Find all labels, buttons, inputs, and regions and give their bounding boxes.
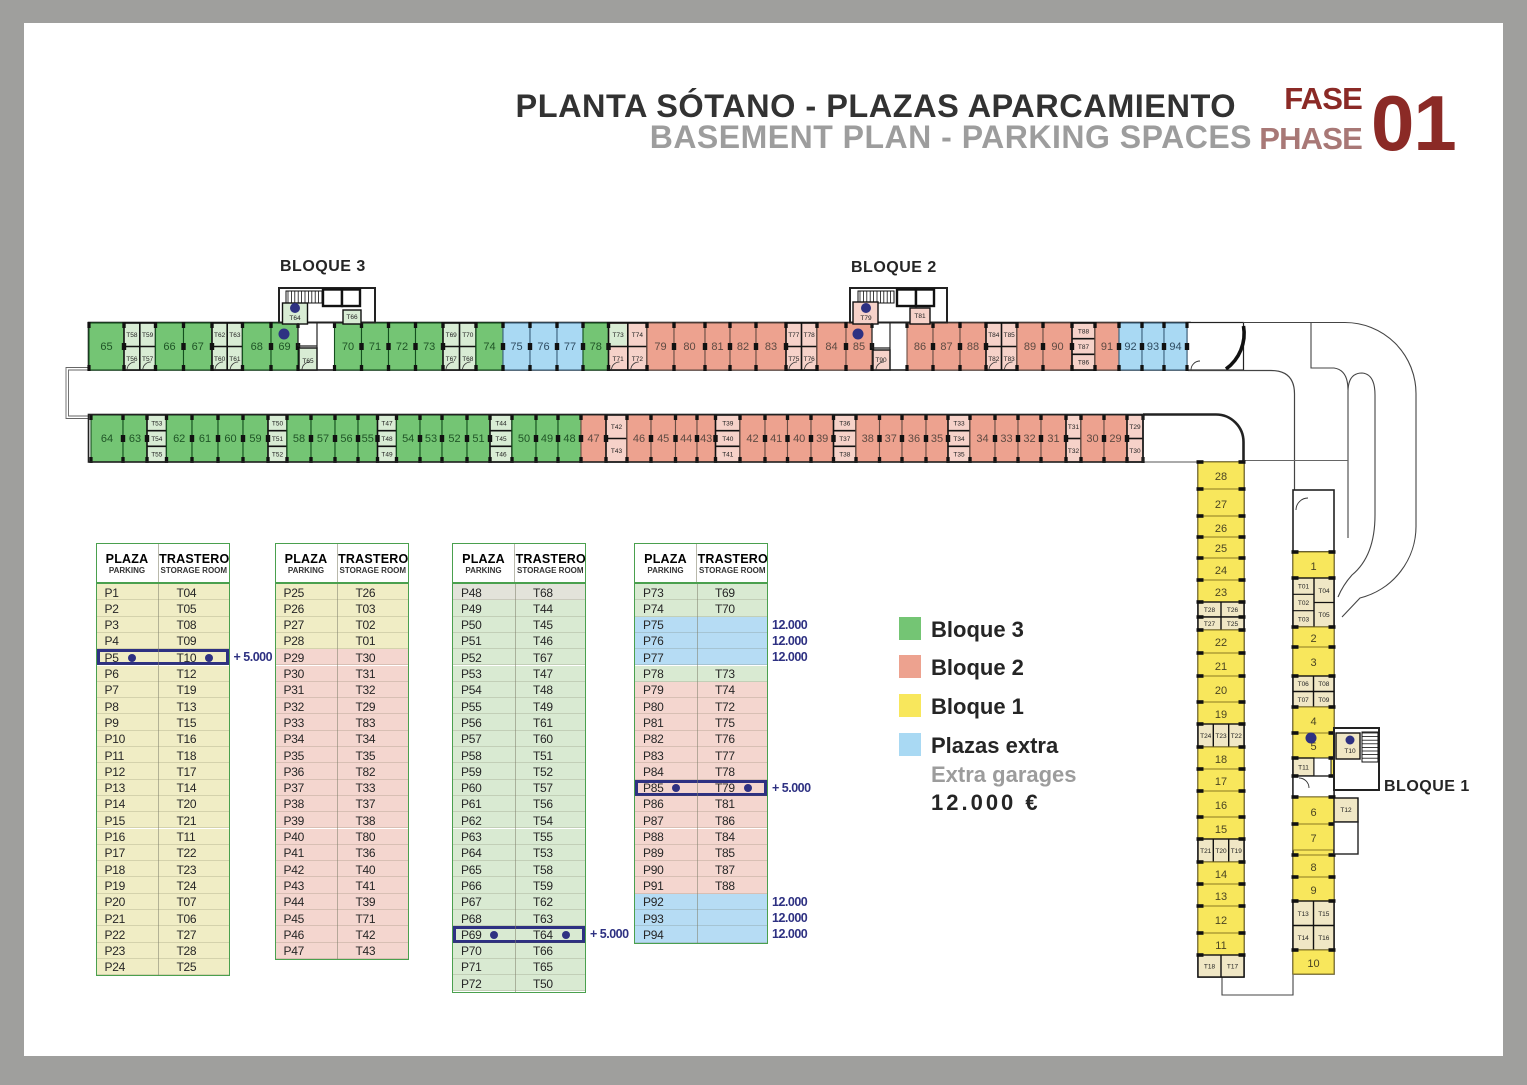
svg-text:1: 1 xyxy=(1310,561,1316,573)
svg-text:T37: T37 xyxy=(839,436,851,443)
svg-text:46: 46 xyxy=(633,433,645,445)
svg-text:T38: T38 xyxy=(839,452,851,459)
svg-text:35: 35 xyxy=(931,433,943,445)
svg-text:75: 75 xyxy=(510,341,522,353)
svg-text:53: 53 xyxy=(425,433,437,445)
svg-text:T06: T06 xyxy=(1298,681,1310,688)
svg-text:43: 43 xyxy=(700,433,712,445)
svg-text:T07: T07 xyxy=(1298,697,1310,704)
svg-text:T10: T10 xyxy=(1344,748,1356,755)
svg-text:42: 42 xyxy=(746,433,758,445)
svg-text:22: 22 xyxy=(1215,637,1227,649)
svg-text:T63: T63 xyxy=(229,332,241,339)
svg-text:T40: T40 xyxy=(722,436,734,443)
svg-text:12: 12 xyxy=(1215,915,1227,927)
svg-text:45: 45 xyxy=(657,433,669,445)
svg-text:2: 2 xyxy=(1310,633,1316,645)
svg-text:T81: T81 xyxy=(914,313,926,320)
svg-text:28: 28 xyxy=(1215,471,1227,483)
svg-text:T65: T65 xyxy=(302,358,314,365)
svg-text:T46: T46 xyxy=(495,452,507,459)
svg-text:T61: T61 xyxy=(229,356,241,363)
svg-text:T29: T29 xyxy=(1129,424,1141,431)
svg-text:T31: T31 xyxy=(1068,424,1080,431)
svg-text:57: 57 xyxy=(317,433,329,445)
svg-text:66: 66 xyxy=(163,341,175,353)
svg-text:49: 49 xyxy=(541,433,553,445)
svg-text:7: 7 xyxy=(1310,833,1316,845)
svg-text:86: 86 xyxy=(914,341,926,353)
svg-text:T02: T02 xyxy=(1298,600,1310,607)
svg-text:T43: T43 xyxy=(611,448,623,455)
svg-text:61: 61 xyxy=(199,433,211,445)
svg-text:59: 59 xyxy=(249,433,261,445)
svg-text:94: 94 xyxy=(1169,341,1181,353)
svg-text:18: 18 xyxy=(1215,754,1227,766)
svg-text:T60: T60 xyxy=(214,356,226,363)
svg-text:6: 6 xyxy=(1310,807,1316,819)
svg-text:T13: T13 xyxy=(1298,911,1310,918)
svg-text:91: 91 xyxy=(1101,341,1113,353)
svg-text:60: 60 xyxy=(224,433,236,445)
svg-text:31: 31 xyxy=(1047,433,1059,445)
svg-text:T03: T03 xyxy=(1298,616,1310,623)
svg-text:39: 39 xyxy=(816,433,828,445)
svg-text:T62: T62 xyxy=(214,332,226,339)
svg-text:T39: T39 xyxy=(722,420,734,427)
svg-text:T25: T25 xyxy=(1227,621,1239,628)
svg-text:29: 29 xyxy=(1109,433,1121,445)
svg-text:74: 74 xyxy=(483,341,495,353)
svg-text:T04: T04 xyxy=(1318,588,1330,595)
svg-text:T33: T33 xyxy=(953,420,965,427)
svg-text:88: 88 xyxy=(967,341,979,353)
svg-text:69: 69 xyxy=(278,341,290,353)
svg-text:52: 52 xyxy=(448,433,460,445)
svg-text:64: 64 xyxy=(101,433,113,445)
svg-text:T05: T05 xyxy=(1318,612,1330,619)
svg-text:T64: T64 xyxy=(289,315,301,322)
svg-text:T86: T86 xyxy=(1078,360,1090,367)
svg-text:87: 87 xyxy=(940,341,952,353)
svg-text:26: 26 xyxy=(1215,523,1227,535)
svg-text:T09: T09 xyxy=(1318,697,1330,704)
svg-text:T90: T90 xyxy=(875,357,887,364)
svg-text:72: 72 xyxy=(396,341,408,353)
svg-text:56: 56 xyxy=(340,433,352,445)
svg-text:T51: T51 xyxy=(272,436,284,443)
svg-text:73: 73 xyxy=(423,341,435,353)
svg-text:T52: T52 xyxy=(272,452,284,459)
svg-text:T32: T32 xyxy=(1068,448,1080,455)
svg-text:84: 84 xyxy=(825,341,837,353)
svg-text:13: 13 xyxy=(1215,891,1227,903)
svg-text:79: 79 xyxy=(654,341,666,353)
svg-text:T55: T55 xyxy=(151,452,163,459)
svg-text:23: 23 xyxy=(1215,587,1227,599)
svg-text:T12: T12 xyxy=(1340,807,1352,814)
svg-text:T01: T01 xyxy=(1298,584,1310,591)
svg-text:77: 77 xyxy=(564,341,576,353)
svg-text:40: 40 xyxy=(793,433,805,445)
svg-text:47: 47 xyxy=(587,433,599,445)
svg-text:T66: T66 xyxy=(346,314,358,321)
svg-text:36: 36 xyxy=(908,433,920,445)
svg-text:14: 14 xyxy=(1215,869,1227,881)
svg-text:85: 85 xyxy=(853,341,865,353)
svg-text:25: 25 xyxy=(1215,543,1227,555)
svg-text:70: 70 xyxy=(342,341,354,353)
svg-text:67: 67 xyxy=(192,341,204,353)
svg-text:T76: T76 xyxy=(804,356,816,363)
svg-text:T21: T21 xyxy=(1200,848,1212,855)
svg-text:T75: T75 xyxy=(788,356,800,363)
svg-text:T27: T27 xyxy=(1204,621,1216,628)
svg-text:78: 78 xyxy=(590,341,602,353)
svg-text:62: 62 xyxy=(173,433,185,445)
svg-text:T28: T28 xyxy=(1204,607,1216,614)
svg-text:T67: T67 xyxy=(446,356,458,363)
svg-text:30: 30 xyxy=(1086,433,1098,445)
svg-text:T53: T53 xyxy=(151,420,163,427)
svg-text:T50: T50 xyxy=(272,420,284,427)
svg-text:11: 11 xyxy=(1215,940,1226,952)
svg-text:81: 81 xyxy=(711,341,723,353)
svg-text:T45: T45 xyxy=(495,436,507,443)
svg-text:68: 68 xyxy=(251,341,263,353)
svg-text:15: 15 xyxy=(1215,824,1227,836)
svg-text:T70: T70 xyxy=(462,332,474,339)
svg-text:T22: T22 xyxy=(1231,733,1243,740)
svg-text:92: 92 xyxy=(1124,341,1136,353)
svg-text:24: 24 xyxy=(1215,565,1227,577)
svg-text:T68: T68 xyxy=(462,356,474,363)
svg-text:34: 34 xyxy=(976,433,988,445)
svg-text:T56: T56 xyxy=(126,356,138,363)
svg-text:T30: T30 xyxy=(1129,448,1141,455)
svg-text:T78: T78 xyxy=(804,332,816,339)
svg-text:T42: T42 xyxy=(611,424,623,431)
svg-text:T69: T69 xyxy=(446,332,458,339)
svg-text:T15: T15 xyxy=(1318,911,1330,918)
svg-text:80: 80 xyxy=(683,341,695,353)
svg-text:44: 44 xyxy=(680,433,692,445)
svg-text:T57: T57 xyxy=(142,356,154,363)
svg-text:16: 16 xyxy=(1215,800,1227,812)
svg-text:58: 58 xyxy=(293,433,305,445)
svg-text:T49: T49 xyxy=(381,452,393,459)
svg-text:T20: T20 xyxy=(1215,848,1227,855)
svg-text:71: 71 xyxy=(369,341,381,353)
svg-text:T26: T26 xyxy=(1227,607,1239,614)
svg-text:90: 90 xyxy=(1051,341,1063,353)
svg-text:T24: T24 xyxy=(1200,733,1212,740)
svg-text:50: 50 xyxy=(518,433,530,445)
svg-text:10: 10 xyxy=(1307,958,1319,970)
svg-text:76: 76 xyxy=(537,341,549,353)
svg-text:20: 20 xyxy=(1215,685,1227,697)
svg-text:T35: T35 xyxy=(953,452,965,459)
svg-text:T19: T19 xyxy=(1231,848,1243,855)
svg-text:T85: T85 xyxy=(1004,332,1016,339)
svg-text:T58: T58 xyxy=(126,332,138,339)
svg-text:T23: T23 xyxy=(1215,733,1227,740)
svg-text:T88: T88 xyxy=(1078,328,1090,335)
svg-text:32: 32 xyxy=(1023,433,1035,445)
svg-text:T79: T79 xyxy=(860,315,872,322)
svg-text:T16: T16 xyxy=(1318,935,1330,942)
svg-text:3: 3 xyxy=(1310,657,1316,669)
svg-text:T74: T74 xyxy=(632,332,644,339)
svg-text:54: 54 xyxy=(402,433,414,445)
svg-text:T18: T18 xyxy=(1204,964,1216,971)
svg-text:T41: T41 xyxy=(722,452,734,459)
svg-text:T87: T87 xyxy=(1078,344,1090,351)
svg-text:27: 27 xyxy=(1215,499,1227,511)
svg-text:T77: T77 xyxy=(788,332,800,339)
svg-text:4: 4 xyxy=(1310,716,1316,728)
svg-text:8: 8 xyxy=(1310,862,1316,874)
svg-text:55: 55 xyxy=(362,433,374,445)
svg-text:19: 19 xyxy=(1215,709,1227,721)
svg-text:T44: T44 xyxy=(495,420,507,427)
svg-text:82: 82 xyxy=(737,341,749,353)
svg-text:33: 33 xyxy=(1000,433,1012,445)
svg-text:51: 51 xyxy=(472,433,484,445)
svg-text:83: 83 xyxy=(765,341,777,353)
svg-text:65: 65 xyxy=(100,341,112,353)
svg-text:T36: T36 xyxy=(839,420,851,427)
svg-text:T54: T54 xyxy=(151,436,163,443)
svg-text:T11: T11 xyxy=(1298,765,1309,772)
svg-text:17: 17 xyxy=(1215,776,1227,788)
svg-text:21: 21 xyxy=(1215,661,1227,673)
svg-text:41: 41 xyxy=(770,433,782,445)
svg-text:48: 48 xyxy=(563,433,575,445)
svg-text:T59: T59 xyxy=(142,332,154,339)
svg-text:63: 63 xyxy=(129,433,141,445)
svg-text:T84: T84 xyxy=(988,332,1000,339)
svg-text:9: 9 xyxy=(1310,885,1316,897)
svg-text:93: 93 xyxy=(1147,341,1159,353)
svg-text:89: 89 xyxy=(1024,341,1036,353)
svg-text:T17: T17 xyxy=(1227,964,1239,971)
svg-text:T14: T14 xyxy=(1298,935,1310,942)
svg-text:T34: T34 xyxy=(953,436,965,443)
svg-text:37: 37 xyxy=(885,433,897,445)
svg-text:T47: T47 xyxy=(381,420,393,427)
svg-text:38: 38 xyxy=(862,433,874,445)
svg-text:T82: T82 xyxy=(988,356,1000,363)
svg-text:T08: T08 xyxy=(1318,681,1330,688)
svg-text:T83: T83 xyxy=(1004,356,1016,363)
svg-text:T73: T73 xyxy=(612,332,624,339)
svg-text:T48: T48 xyxy=(381,436,393,443)
